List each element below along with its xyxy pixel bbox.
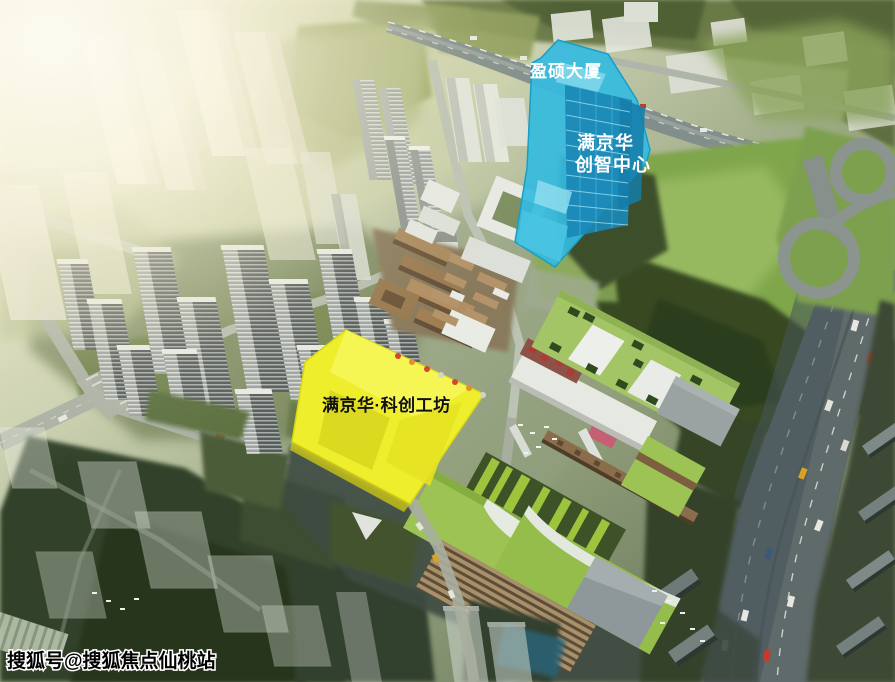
- svg-text:创智中心: 创智中心: [574, 154, 651, 175]
- svg-text:搜狐号@搜狐焦点仙桃站: 搜狐号@搜狐焦点仙桃站: [7, 649, 216, 672]
- svg-text:满京华: 满京华: [577, 132, 634, 153]
- svg-text:满京华·科创工坊: 满京华·科创工坊: [322, 395, 451, 415]
- svg-text:盈硕大厦: 盈硕大厦: [529, 61, 602, 81]
